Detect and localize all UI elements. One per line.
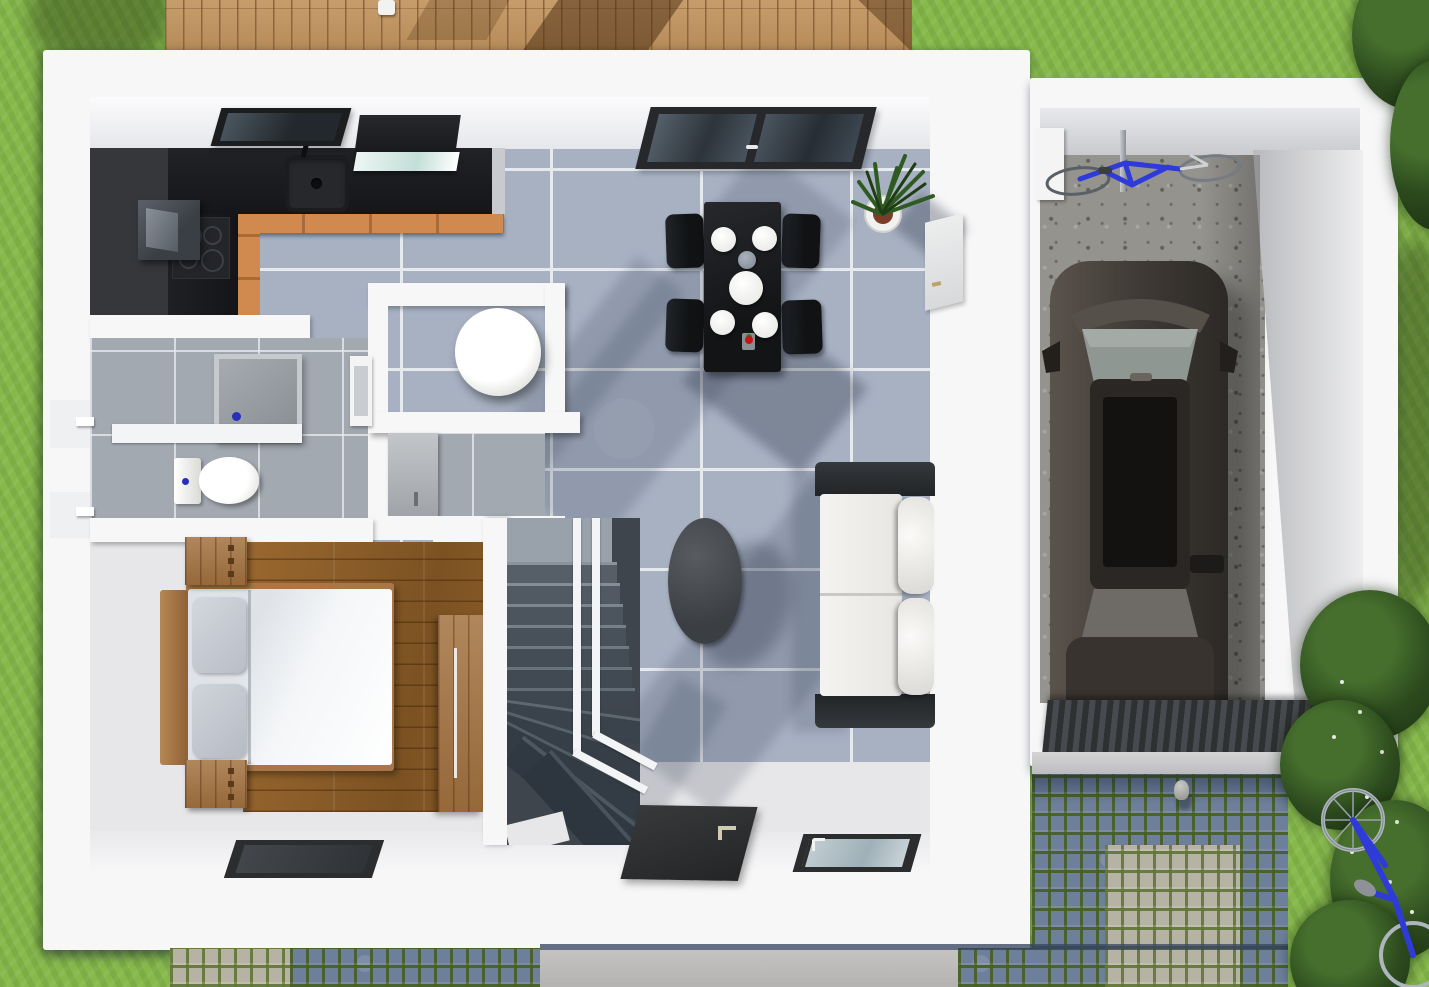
sofa-seat-split	[820, 593, 902, 596]
driveway-shade	[1032, 774, 1288, 804]
counter-end-panel	[492, 148, 505, 214]
front-path	[290, 948, 540, 987]
stair-tread	[507, 646, 629, 667]
washer-faucet-icon	[414, 492, 418, 506]
plate	[752, 312, 778, 338]
driveway-path	[1105, 845, 1240, 987]
plate	[752, 226, 777, 251]
burner-icon	[203, 226, 222, 245]
floorplan-scene	[0, 0, 1429, 987]
range-hood	[354, 115, 461, 155]
plate	[711, 227, 736, 252]
table-decor-flower	[745, 336, 753, 344]
toilet-flush-button	[182, 478, 189, 485]
stair-tread	[507, 562, 617, 583]
sofa-back-cushion	[898, 497, 934, 594]
terrace-door-glass	[647, 114, 757, 162]
stairs-wall	[483, 518, 507, 845]
cabinet-front	[238, 214, 504, 233]
stair-tread	[507, 604, 623, 625]
nightstand-handles	[228, 768, 234, 800]
stair-tread	[507, 667, 632, 688]
bed-pillow	[192, 684, 246, 758]
bedroom-wall	[433, 518, 483, 542]
window-sill	[76, 507, 94, 516]
garage-drain-grate	[1042, 700, 1315, 752]
washbasin-bowl	[354, 366, 368, 416]
bedroom-window-glass	[235, 845, 372, 873]
dining-chair	[781, 299, 823, 354]
wc-basin-column	[455, 308, 541, 396]
shower-curb	[112, 424, 302, 443]
entry-door-handle-icon	[718, 826, 736, 840]
sofa-back-cushion	[898, 598, 934, 695]
dining-chair	[781, 213, 821, 268]
stair-base	[507, 811, 570, 845]
wc-wall	[368, 283, 565, 306]
dining-chair	[665, 298, 705, 352]
front-pad	[540, 950, 958, 987]
entry-door	[620, 805, 757, 881]
nightstand	[185, 537, 247, 585]
range-hood-glass	[353, 152, 459, 171]
stair-tread	[507, 625, 626, 646]
burner-icon	[201, 249, 224, 272]
house-base-shadow	[540, 944, 1288, 950]
washer	[388, 433, 438, 518]
plate	[710, 310, 735, 335]
nightstand	[185, 760, 247, 808]
bed-pillow	[192, 597, 246, 673]
dining-chair	[665, 213, 705, 268]
stair-railing	[592, 518, 600, 736]
wardrobe	[438, 615, 483, 812]
coffee-table	[668, 518, 742, 644]
car	[1040, 255, 1240, 750]
front-path-light	[170, 948, 290, 987]
stair-railing	[573, 518, 581, 754]
garage-bicycle	[1040, 145, 1250, 205]
lawn-bicycle	[1295, 770, 1429, 987]
bathroom-wall	[90, 315, 310, 338]
bush-flowers	[1340, 680, 1344, 684]
window-sill	[76, 417, 94, 426]
kitchen-window-glass	[220, 113, 342, 141]
wardrobe-handle	[454, 648, 457, 778]
cabinet-front-side	[238, 233, 260, 320]
sofa-armrest	[815, 694, 935, 728]
serving-bowl	[729, 271, 763, 305]
door-handle-icon	[746, 145, 758, 149]
toilet-bowl	[199, 457, 259, 504]
kitchen-appliance-front	[146, 208, 178, 252]
wc-wall	[545, 283, 565, 412]
sofa-armrest	[815, 462, 935, 496]
bed-headboard	[160, 590, 188, 765]
cup	[738, 251, 756, 269]
wc-wall	[368, 412, 580, 433]
stair-tread	[507, 583, 620, 604]
parasol-pole	[378, 0, 395, 15]
garage-house-door	[925, 213, 963, 310]
nightstand-handles	[228, 545, 234, 577]
front-path	[958, 948, 1035, 987]
window-handle-icon	[812, 838, 825, 851]
shower-drain	[232, 412, 241, 421]
sink-drain	[311, 178, 322, 189]
bollard	[1174, 780, 1189, 800]
duvet-fold	[248, 590, 251, 764]
